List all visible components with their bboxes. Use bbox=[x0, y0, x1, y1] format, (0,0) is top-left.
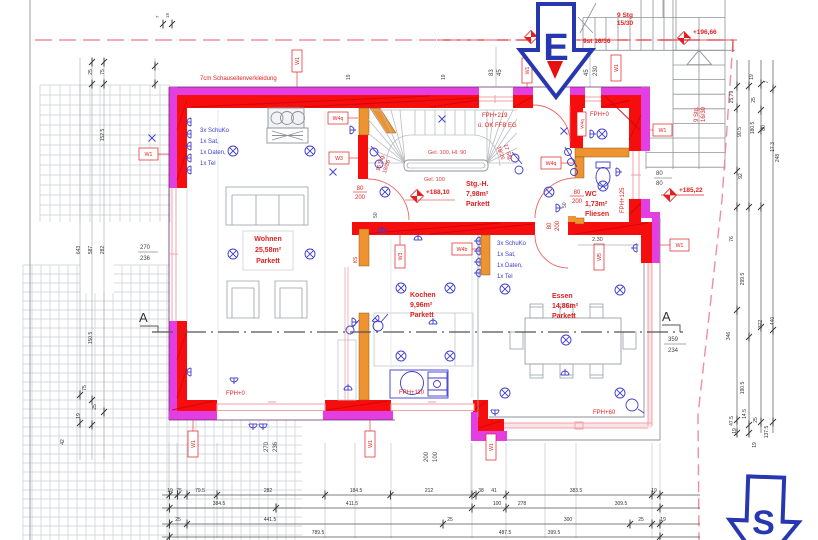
svg-text:42: 42 bbox=[60, 439, 66, 445]
svg-text:Parkett: Parkett bbox=[466, 201, 490, 208]
svg-text:278: 278 bbox=[518, 501, 527, 507]
svg-text:80: 80 bbox=[761, 125, 767, 131]
svg-text:83: 83 bbox=[489, 69, 495, 76]
svg-text:1x Sat,: 1x Sat, bbox=[497, 252, 516, 258]
svg-text:212: 212 bbox=[425, 488, 434, 494]
svg-text:W4q: W4q bbox=[579, 119, 584, 129]
svg-text:200: 200 bbox=[555, 220, 561, 231]
svg-text:FPH+125: FPH+125 bbox=[620, 187, 626, 213]
svg-text:487.5: 487.5 bbox=[499, 530, 512, 536]
svg-text:W1: W1 bbox=[145, 152, 153, 158]
svg-text:50: 50 bbox=[562, 202, 568, 208]
svg-text:236: 236 bbox=[140, 256, 151, 262]
svg-text:14,86m²: 14,86m² bbox=[552, 303, 579, 310]
svg-text:200: 200 bbox=[424, 451, 430, 462]
svg-text:15/30: 15/30 bbox=[617, 20, 634, 27]
svg-text:789.5: 789.5 bbox=[312, 530, 325, 536]
svg-text:47.5: 47.5 bbox=[729, 416, 735, 426]
svg-text:25,79: 25,79 bbox=[729, 91, 735, 104]
svg-text:383.5: 383.5 bbox=[570, 488, 583, 494]
svg-text:W4q: W4q bbox=[333, 116, 344, 122]
svg-text:399.5: 399.5 bbox=[548, 530, 561, 536]
svg-text:9 Stg: 9 Stg bbox=[617, 12, 633, 19]
svg-text:137.5: 137.5 bbox=[764, 426, 770, 439]
svg-text:248: 248 bbox=[775, 154, 781, 163]
svg-text:7,98m²: 7,98m² bbox=[466, 191, 489, 198]
svg-text:Parkett: Parkett bbox=[552, 313, 576, 320]
svg-text:236: 236 bbox=[273, 441, 279, 452]
svg-text:384.5: 384.5 bbox=[213, 501, 226, 507]
svg-text:17.3: 17.3 bbox=[770, 142, 776, 152]
svg-text:9,96m²: 9,96m² bbox=[410, 302, 433, 309]
svg-text:FPH+219: FPH+219 bbox=[482, 113, 508, 119]
svg-text:FPH+0: FPH+0 bbox=[590, 112, 610, 118]
svg-text:643: 643 bbox=[76, 246, 82, 255]
svg-text:180.5: 180.5 bbox=[750, 122, 756, 135]
svg-text:3x SchuKo: 3x SchuKo bbox=[200, 128, 230, 134]
svg-text:45: 45 bbox=[584, 69, 590, 76]
svg-text:3x SchuKo: 3x SchuKo bbox=[497, 241, 527, 247]
svg-text:152.5: 152.5 bbox=[100, 129, 106, 142]
svg-text:Stg.-H.: Stg.-H. bbox=[466, 181, 489, 188]
svg-text:FPH+60: FPH+60 bbox=[593, 410, 616, 416]
svg-text:19: 19 bbox=[165, 12, 170, 18]
svg-text:1x Sat,: 1x Sat, bbox=[200, 139, 219, 145]
svg-text:19: 19 bbox=[167, 488, 173, 494]
svg-text:W1: W1 bbox=[659, 128, 667, 134]
svg-text:25,58m²: 25,58m² bbox=[255, 247, 282, 254]
svg-text:234: 234 bbox=[668, 348, 679, 354]
svg-text:200: 200 bbox=[355, 195, 366, 201]
svg-text:A: A bbox=[139, 310, 148, 325]
svg-text:19: 19 bbox=[441, 74, 447, 80]
svg-text:38: 38 bbox=[478, 488, 484, 494]
svg-text:W3: W3 bbox=[398, 252, 404, 260]
svg-text:282: 282 bbox=[100, 246, 106, 255]
svg-text:K5: K5 bbox=[353, 257, 359, 263]
svg-text:282: 282 bbox=[264, 488, 273, 494]
svg-text:75: 75 bbox=[176, 488, 182, 494]
svg-text:+188,10: +188,10 bbox=[426, 189, 450, 196]
svg-text:150.5: 150.5 bbox=[88, 332, 94, 345]
svg-text:411.5: 411.5 bbox=[346, 501, 358, 507]
svg-text:299.5: 299.5 bbox=[740, 273, 746, 286]
svg-text:7: 7 bbox=[764, 80, 770, 83]
svg-text:19: 19 bbox=[749, 74, 755, 80]
svg-text:25: 25 bbox=[175, 517, 181, 523]
svg-text:Essen: Essen bbox=[552, 293, 573, 300]
svg-text:75: 75 bbox=[82, 385, 88, 391]
svg-text:14.5: 14.5 bbox=[742, 409, 748, 419]
svg-text:FPH+0: FPH+0 bbox=[226, 391, 246, 397]
svg-text:9st 16/36: 9st 16/36 bbox=[583, 38, 611, 45]
svg-text:80: 80 bbox=[357, 186, 364, 192]
svg-text:W1: W1 bbox=[676, 243, 684, 249]
svg-text:25: 25 bbox=[638, 517, 644, 523]
svg-text:90.5: 90.5 bbox=[737, 127, 743, 137]
svg-text:92: 92 bbox=[738, 173, 744, 179]
svg-text:80: 80 bbox=[656, 181, 663, 187]
svg-text:Kochen: Kochen bbox=[410, 292, 436, 299]
svg-text:1,73m²: 1,73m² bbox=[585, 201, 608, 208]
svg-text:359: 359 bbox=[668, 337, 679, 343]
svg-text:A: A bbox=[662, 309, 671, 324]
svg-text:19: 19 bbox=[346, 74, 352, 80]
svg-text:79.5: 79.5 bbox=[195, 488, 205, 494]
svg-text:441.5: 441.5 bbox=[264, 517, 277, 523]
svg-text:25: 25 bbox=[751, 97, 757, 103]
svg-text:184.5: 184.5 bbox=[350, 488, 363, 494]
svg-text:W1: W1 bbox=[614, 64, 620, 72]
svg-text:80: 80 bbox=[656, 171, 663, 177]
svg-text:W5: W5 bbox=[597, 253, 603, 261]
svg-text:80: 80 bbox=[547, 222, 553, 229]
svg-text:50: 50 bbox=[373, 212, 379, 218]
svg-text:W4q: W4q bbox=[546, 161, 557, 167]
svg-text:19: 19 bbox=[651, 488, 657, 494]
svg-text:25: 25 bbox=[753, 417, 759, 423]
svg-text:W1: W1 bbox=[295, 57, 301, 65]
svg-text:1x Daten,: 1x Daten, bbox=[497, 263, 523, 269]
svg-text:WC: WC bbox=[585, 191, 597, 198]
svg-text:FPH+110: FPH+110 bbox=[399, 390, 425, 396]
svg-text:W4b: W4b bbox=[457, 247, 468, 253]
svg-text:270: 270 bbox=[264, 441, 270, 452]
svg-text:19: 19 bbox=[732, 428, 738, 434]
svg-text:100: 100 bbox=[433, 451, 439, 462]
svg-text:+196,66: +196,66 bbox=[693, 29, 717, 36]
svg-text:W3: W3 bbox=[335, 156, 343, 162]
svg-text:300: 300 bbox=[564, 517, 573, 523]
svg-text:+185,22: +185,22 bbox=[679, 187, 703, 194]
svg-text:80: 80 bbox=[574, 190, 581, 196]
svg-text:45: 45 bbox=[497, 69, 503, 76]
svg-text:9 Stg.: 9 Stg. bbox=[694, 106, 700, 122]
svg-text:W1: W1 bbox=[489, 443, 495, 451]
svg-text:1x Tel: 1x Tel bbox=[497, 274, 513, 280]
svg-text:Gel. 100, Hl. 90: Gel. 100, Hl. 90 bbox=[428, 150, 466, 156]
svg-text:2.30: 2.30 bbox=[592, 237, 603, 243]
svg-text:1x Daten,: 1x Daten, bbox=[200, 150, 226, 156]
svg-text:309.5: 309.5 bbox=[615, 501, 628, 507]
svg-text:75: 75 bbox=[100, 69, 106, 75]
svg-text:W1: W1 bbox=[191, 440, 197, 448]
svg-text:ü. OK FFB EG: ü. OK FFB EG bbox=[478, 123, 517, 129]
svg-text:W1: W1 bbox=[368, 440, 374, 448]
svg-text:76: 76 bbox=[729, 236, 735, 242]
svg-text:230: 230 bbox=[593, 65, 599, 76]
svg-text:19: 19 bbox=[76, 413, 82, 419]
svg-text:16/30: 16/30 bbox=[701, 106, 707, 122]
svg-text:41: 41 bbox=[491, 488, 497, 494]
svg-text:25: 25 bbox=[88, 69, 94, 75]
svg-text:587: 587 bbox=[88, 246, 94, 255]
svg-text:346: 346 bbox=[726, 332, 732, 341]
svg-text:Wohnen: Wohnen bbox=[254, 236, 281, 243]
svg-text:1x Tel: 1x Tel bbox=[200, 161, 216, 167]
svg-text:200: 200 bbox=[572, 199, 583, 205]
svg-text:W1: W1 bbox=[525, 66, 531, 74]
svg-text:372: 372 bbox=[758, 320, 764, 329]
svg-text:Parkett: Parkett bbox=[256, 258, 280, 265]
svg-text:Gel. 100: Gel. 100 bbox=[424, 177, 445, 183]
svg-text:19: 19 bbox=[660, 517, 666, 523]
svg-text:S: S bbox=[752, 504, 776, 540]
svg-text:25: 25 bbox=[447, 517, 453, 523]
svg-text:440: 440 bbox=[770, 317, 776, 326]
svg-text:7cm Schauseitenverkleidung: 7cm Schauseitenverkleidung bbox=[200, 76, 277, 82]
svg-text:270: 270 bbox=[140, 245, 151, 251]
svg-text:25: 25 bbox=[92, 404, 98, 410]
svg-text:100: 100 bbox=[493, 501, 502, 507]
svg-text:Fliesen: Fliesen bbox=[585, 211, 609, 218]
svg-text:Parkett: Parkett bbox=[410, 312, 434, 319]
svg-text:19: 19 bbox=[752, 442, 758, 448]
svg-text:190.5: 190.5 bbox=[740, 382, 746, 395]
